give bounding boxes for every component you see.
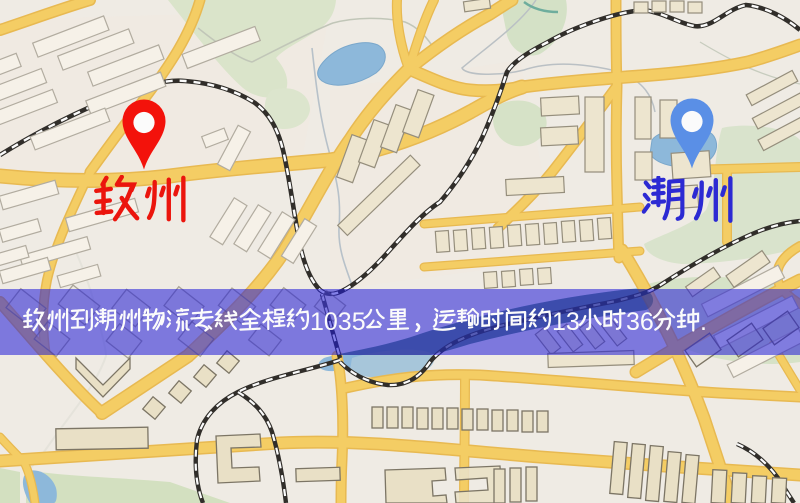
svg-text:1035: 1035 (310, 308, 366, 336)
svg-text:13: 13 (552, 308, 580, 336)
svg-text:.: . (700, 308, 707, 336)
svg-text:36: 36 (626, 308, 654, 336)
